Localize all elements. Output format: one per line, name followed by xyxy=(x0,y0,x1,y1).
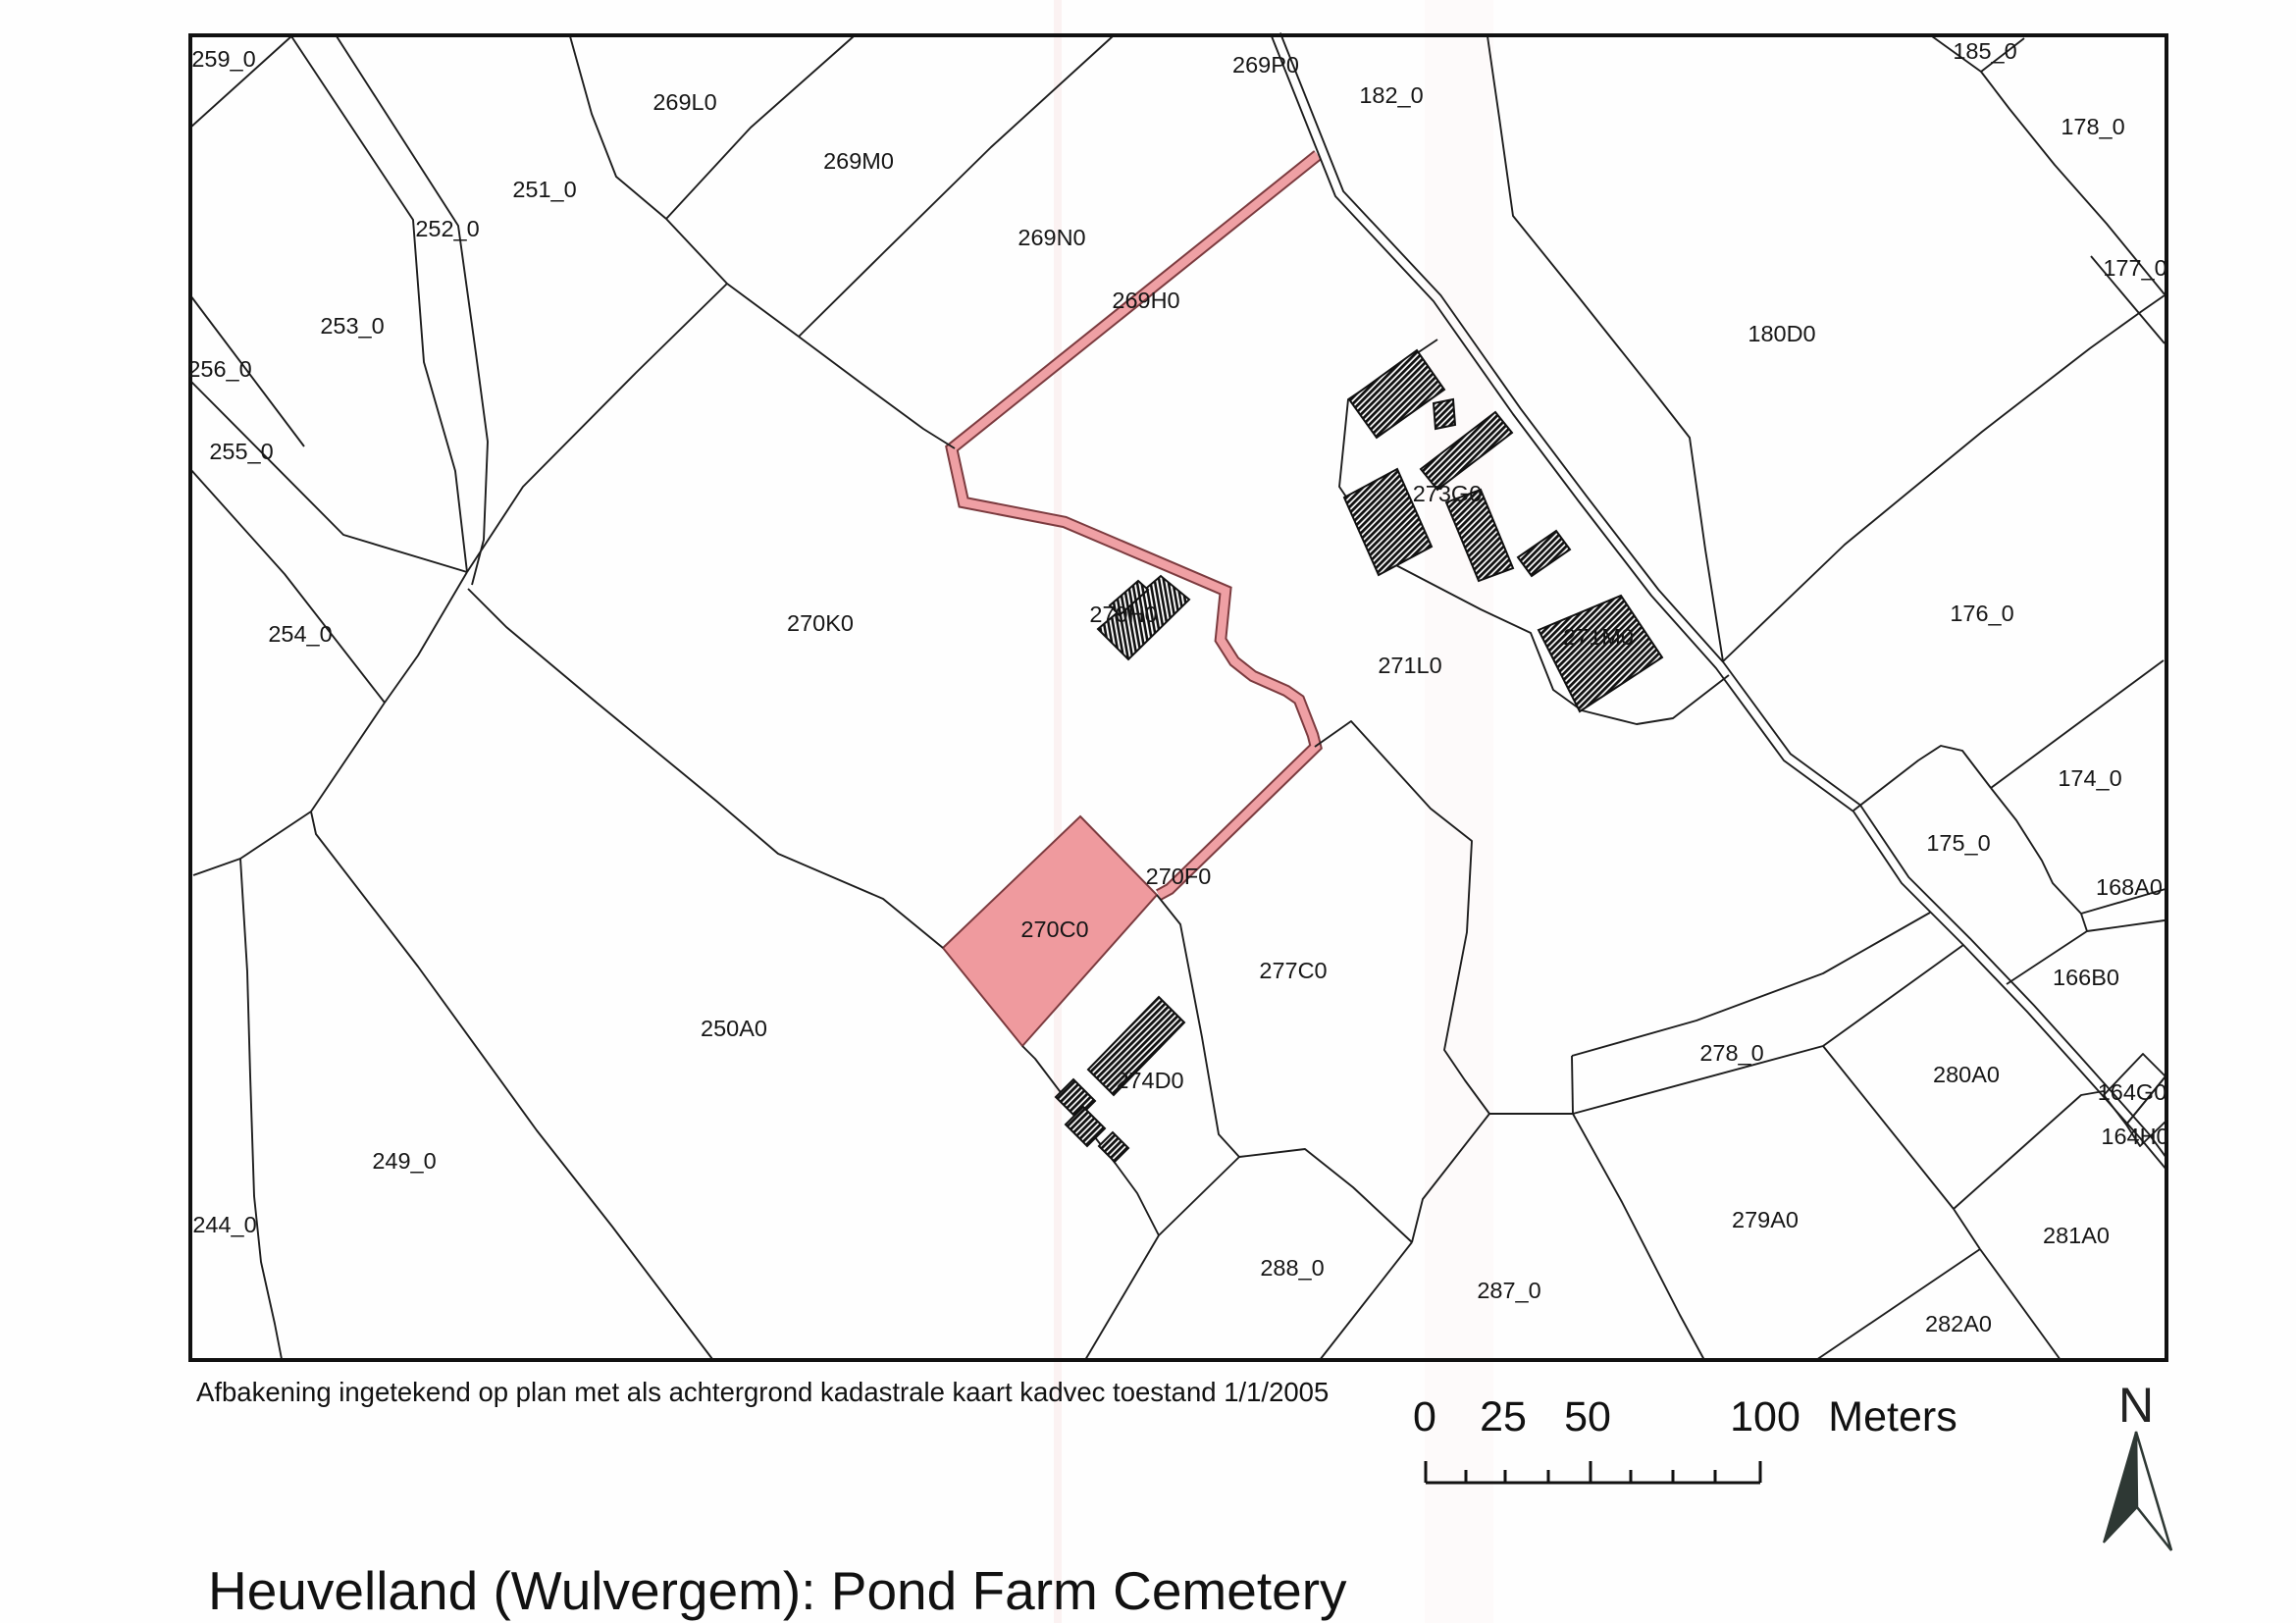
svg-text:271L0: 271L0 xyxy=(1378,653,1441,678)
svg-text:269P0: 269P0 xyxy=(1232,52,1299,78)
svg-text:255_0: 255_0 xyxy=(209,439,273,464)
svg-text:178_0: 178_0 xyxy=(2061,114,2124,139)
svg-text:168A0: 168A0 xyxy=(2096,874,2163,900)
svg-text:175_0: 175_0 xyxy=(1926,830,1990,856)
svg-text:251_0: 251_0 xyxy=(512,177,576,202)
svg-text:180D0: 180D0 xyxy=(1748,321,1815,346)
svg-text:176_0: 176_0 xyxy=(1950,601,2013,626)
svg-text:25: 25 xyxy=(1480,1393,1527,1440)
svg-text:282A0: 282A0 xyxy=(1925,1311,1992,1336)
svg-text:164H0: 164H0 xyxy=(2101,1124,2168,1149)
svg-text:270K0: 270K0 xyxy=(787,610,854,636)
svg-text:274D0: 274D0 xyxy=(1116,1068,1183,1093)
svg-text:Heuvelland (Wulvergem): Pond F: Heuvelland (Wulvergem): Pond Farm Cemete… xyxy=(208,1560,1347,1621)
svg-text:269N0: 269N0 xyxy=(1018,225,1085,250)
svg-text:281A0: 281A0 xyxy=(2043,1223,2110,1248)
svg-text:177_0: 177_0 xyxy=(2103,255,2166,281)
svg-text:249_0: 249_0 xyxy=(372,1148,436,1174)
svg-text:Afbakening ingetekend op plan: Afbakening ingetekend op plan met als ac… xyxy=(196,1377,1329,1407)
svg-text:0: 0 xyxy=(1413,1393,1436,1440)
svg-text:269H0: 269H0 xyxy=(1112,288,1179,313)
svg-text:273G0: 273G0 xyxy=(1413,481,1483,506)
svg-text:277C0: 277C0 xyxy=(1259,958,1327,983)
svg-text:164G0: 164G0 xyxy=(2098,1079,2167,1105)
svg-text:270F0: 270F0 xyxy=(1146,864,1212,889)
svg-text:269L0: 269L0 xyxy=(652,89,716,115)
svg-text:50: 50 xyxy=(1564,1393,1611,1440)
svg-text:279A0: 279A0 xyxy=(1732,1207,1799,1232)
svg-text:Meters: Meters xyxy=(1828,1393,1957,1440)
svg-text:278_0: 278_0 xyxy=(1699,1040,1763,1066)
svg-text:288_0: 288_0 xyxy=(1260,1255,1324,1281)
svg-text:182_0: 182_0 xyxy=(1359,82,1423,108)
svg-text:250A0: 250A0 xyxy=(701,1016,767,1041)
svg-text:271M0: 271M0 xyxy=(1563,624,1634,650)
svg-text:270H0: 270H0 xyxy=(1089,602,1157,627)
svg-text:244_0: 244_0 xyxy=(192,1212,256,1237)
svg-text:N: N xyxy=(2118,1378,2154,1433)
svg-text:280A0: 280A0 xyxy=(1933,1062,2000,1087)
svg-text:270C0: 270C0 xyxy=(1020,916,1088,942)
svg-text:269M0: 269M0 xyxy=(823,148,894,174)
svg-text:174_0: 174_0 xyxy=(2058,765,2121,791)
svg-text:252_0: 252_0 xyxy=(415,216,479,241)
svg-text:253_0: 253_0 xyxy=(320,313,384,339)
svg-text:185_0: 185_0 xyxy=(1953,38,2016,64)
svg-text:256_0: 256_0 xyxy=(187,356,251,382)
svg-text:254_0: 254_0 xyxy=(268,621,332,647)
svg-text:259_0: 259_0 xyxy=(191,46,255,72)
svg-text:287_0: 287_0 xyxy=(1477,1278,1540,1303)
svg-text:100: 100 xyxy=(1730,1393,1800,1440)
svg-text:166B0: 166B0 xyxy=(2053,965,2119,990)
